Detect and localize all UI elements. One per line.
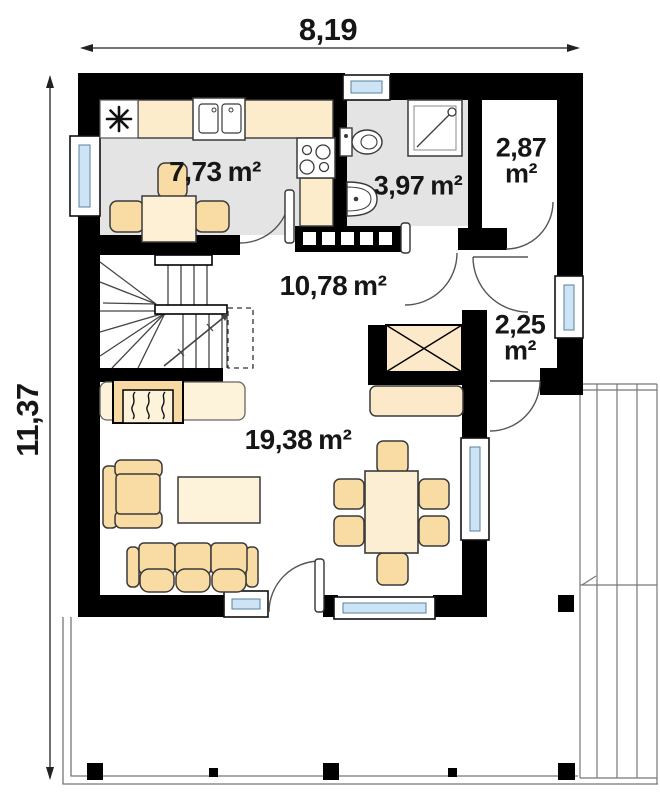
- bathroom-door: [401, 223, 457, 305]
- room-label-living-room: 19,38m²: [245, 424, 352, 456]
- stove: [297, 138, 335, 178]
- living-room-small-window: [224, 591, 268, 617]
- fireplace: [100, 380, 245, 423]
- shower: [408, 100, 462, 156]
- room-label-pantry: 2,87m²: [496, 135, 547, 186]
- dimension-height-label: 11,37: [10, 383, 46, 456]
- toilet: [340, 128, 382, 156]
- living-room-side-window: [461, 438, 489, 540]
- kitchen-window: [70, 136, 100, 216]
- chimney-shaft: [386, 325, 462, 372]
- vestibule-hall-door: [473, 257, 528, 312]
- dining-set: [334, 441, 449, 585]
- floor-plan: 8,19 11,37 7,73m² 3,97m² 2,87m² 10,78m² …: [0, 0, 660, 809]
- freezer: [100, 100, 138, 138]
- room-label-hall: 10,78m²: [280, 270, 387, 302]
- sideboard: [370, 386, 463, 416]
- floor-plan-drawing: [0, 0, 660, 809]
- staircase: [100, 255, 253, 368]
- room-label-vestibule: 2,25m²: [495, 312, 546, 363]
- sofa: [127, 543, 258, 592]
- glass-block-wall: [295, 226, 405, 252]
- coffee-table: [178, 477, 260, 523]
- terrace: [63, 617, 658, 784]
- pantry-door: [506, 202, 553, 249]
- bathroom-window: [343, 75, 390, 100]
- vestibule-window: [555, 276, 583, 338]
- living-room-wide-window: [334, 597, 435, 619]
- living-room-furniture: [103, 441, 449, 592]
- dimension-width-label: 8,19: [299, 12, 357, 48]
- terrace-posts: [87, 763, 575, 780]
- side-deck: [580, 384, 657, 784]
- freezer-snowflake-icon: [107, 107, 131, 131]
- kitchen-sink: [193, 98, 245, 140]
- terrace-door: [269, 559, 324, 612]
- room-label-kitchen: 7,73m²: [169, 156, 261, 188]
- vestibule-exit-door: [490, 381, 540, 431]
- armchair: [103, 460, 162, 528]
- kitchen-counter-side: [300, 178, 333, 226]
- room-label-bathroom: 3,97m²: [374, 171, 463, 202]
